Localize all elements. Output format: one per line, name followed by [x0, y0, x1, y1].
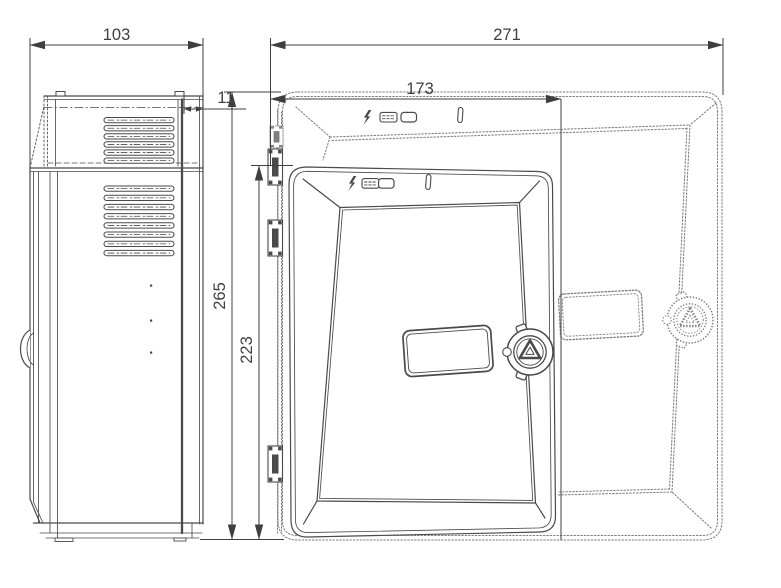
vent-louvers-top [104, 118, 174, 164]
technical-drawing-canvas: 103 11 271 173 265 223 [0, 0, 781, 588]
side-handle [21, 330, 34, 368]
rear-triangular-key-lock [663, 292, 713, 349]
rear-label-window [558, 290, 643, 340]
rear-box-symbol-row [363, 107, 463, 125]
battery-icon [379, 179, 395, 189]
battery-charge-icon [362, 179, 379, 189]
dimension-front-width: 271 [271, 26, 724, 45]
door-label-window [403, 325, 494, 377]
side-view [21, 92, 204, 542]
hinge [268, 446, 283, 482]
dimension-label-front-width: 271 [493, 26, 521, 44]
dimension-label-front-height: 265 [211, 282, 229, 310]
battery-charge-icon [380, 112, 397, 122]
hinge [270, 126, 283, 148]
rivet-dots [150, 285, 152, 354]
front-view-door [289, 167, 556, 537]
mains-power-icon [363, 110, 371, 125]
technical-drawing-page: 103 11 271 173 265 223 [0, 0, 781, 588]
key-slot-icon [425, 174, 431, 189]
dimension-label-door-height: 223 [238, 336, 256, 364]
battery-icon [401, 112, 417, 122]
side-view-base [30, 499, 203, 542]
vent-louvers-bottom [104, 186, 174, 256]
key-slot-icon [457, 107, 463, 122]
dimension-side-depth: 103 [30, 26, 203, 45]
dimension-front-height: 265 [211, 92, 232, 540]
door-hinges [268, 126, 283, 482]
dimension-door-width: 173 [271, 80, 562, 99]
hinge [268, 220, 283, 256]
dimension-label-side-depth: 103 [103, 26, 131, 44]
dimension-door-height: 223 [238, 166, 259, 540]
dimension-label-door-width: 173 [406, 80, 434, 98]
